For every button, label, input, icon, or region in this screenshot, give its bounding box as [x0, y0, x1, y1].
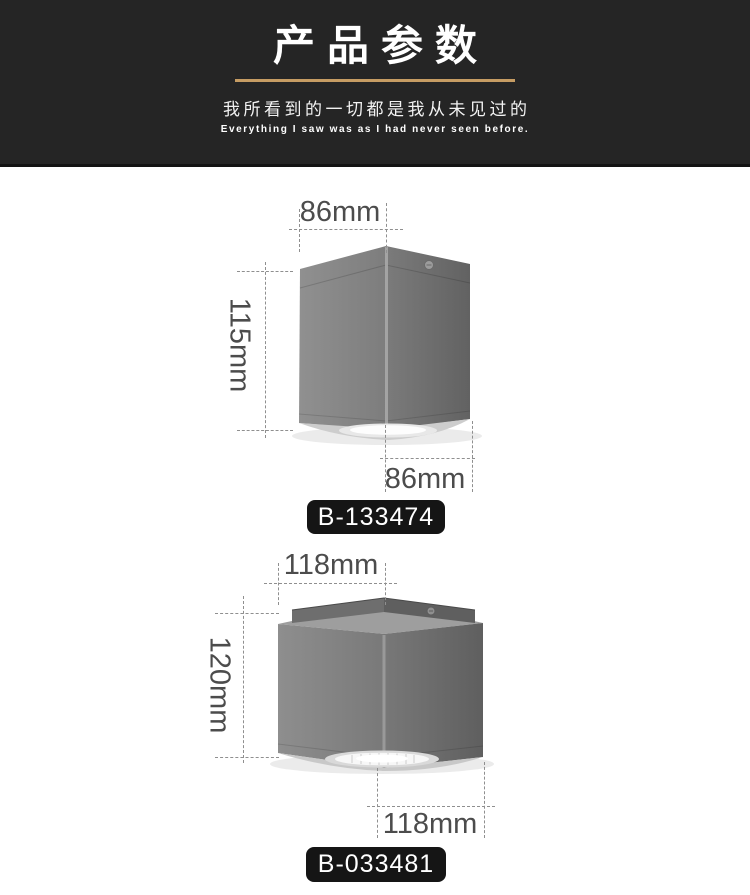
p2-height-label: 120mm [203, 637, 236, 734]
p1-height-label: 115mm [223, 298, 256, 393]
p2-bottom-dimension-line [367, 806, 495, 807]
model-badge-2: B-033481 [306, 847, 446, 882]
p1-top-tick-right [386, 203, 387, 253]
p2-height-tick-top [215, 613, 279, 614]
p1-height-tick-top [237, 271, 293, 272]
p1-height-tick-bottom [237, 430, 293, 431]
body-left-face [299, 246, 386, 430]
p1-height-dimension-line [265, 262, 266, 438]
lens-core [356, 755, 408, 763]
p2-top-tick-left [278, 563, 279, 605]
body-right-face [384, 623, 483, 768]
downlight-render-1 [292, 246, 482, 445]
p2-height-tick-bottom [215, 757, 279, 758]
p1-top-width-label: 86mm [280, 196, 400, 229]
p2-top-width-label: 118mm [271, 549, 391, 582]
p2-bottom-width-label: 118mm [370, 808, 490, 841]
product-renders [0, 0, 750, 895]
screw-icon [425, 261, 434, 270]
screw-icon [427, 607, 435, 615]
model-badge-1: B-133474 [307, 500, 445, 534]
product-diagram-area: 86mm 115mm 86mm B-133474 118mm 120mm 118… [0, 0, 750, 895]
p2-top-dimension-line [264, 583, 397, 584]
p1-bottom-dimension-line [380, 458, 475, 459]
p2-height-dimension-line [243, 596, 244, 763]
p1-bottom-width-label: 86mm [365, 463, 485, 496]
lens [350, 425, 426, 435]
p1-top-tick-left [299, 209, 300, 252]
p2-top-tick-right [385, 563, 386, 605]
downlight-render-2 [270, 598, 494, 774]
